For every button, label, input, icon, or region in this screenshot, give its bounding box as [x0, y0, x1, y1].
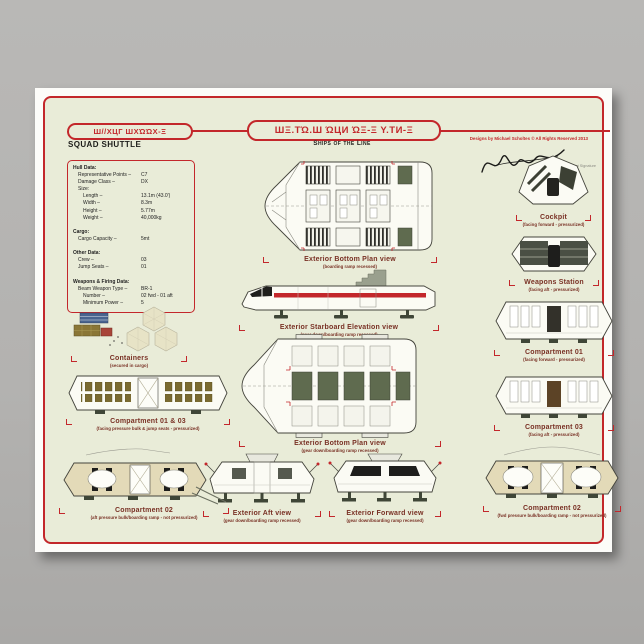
- figure-caption: Cockpit: [515, 214, 592, 222]
- spec-line: Length –13.1m (43.0'): [73, 193, 189, 200]
- spec-line: Weight –40,000kg: [73, 215, 189, 222]
- crop-mark-icon: [509, 280, 515, 286]
- compartment-03-drawing: [493, 370, 615, 422]
- figure-cockpit: Cockpit(facing forward - pressurized): [515, 150, 592, 228]
- spec-line: Width –8.3m: [73, 200, 189, 207]
- figure-subcaption: (gear down/boarding ramp recessed): [328, 518, 442, 524]
- figure-subcaption: (aft pressure bulk/boarding ramp - not p…: [58, 515, 230, 521]
- figure-subcaption: (secured in cargo): [70, 363, 188, 369]
- spec-line: [73, 271, 189, 278]
- crop-mark-icon: [239, 441, 245, 447]
- crop-mark-icon: [239, 325, 245, 331]
- spec-line: Representative Points –C7: [73, 172, 189, 179]
- figure-caption: Containers: [70, 355, 188, 363]
- compartment-02-aft-drawing: [58, 447, 230, 505]
- crop-mark-icon: [223, 508, 229, 514]
- compartment-01-03-drawing: [65, 370, 231, 416]
- spec-line: Crew –03: [73, 257, 189, 264]
- crop-mark-icon: [59, 508, 65, 514]
- compartment-01-drawing: [493, 295, 615, 347]
- crop-mark-icon: [66, 419, 72, 425]
- poster-border: Ш//ХЦГ ШХΏΏХ-Ξ SQUAD SHUTTLE ШΞ.ТΏ.Ш ΏЦИ…: [43, 96, 604, 544]
- spec-line: Number –02 fwd - 01 aft: [73, 293, 189, 300]
- spec-line: Other Data:: [73, 250, 189, 257]
- weapons-station-drawing: [508, 231, 600, 277]
- crop-mark-icon: [608, 350, 614, 356]
- figure-subcaption: (fwd pressure bulk/boarding ramp - not p…: [482, 513, 622, 519]
- crop-mark-icon: [329, 511, 335, 517]
- spec-line: Weapons & Firing Data:: [73, 279, 189, 286]
- figure-caption: Compartment 03: [493, 424, 615, 432]
- crop-mark-icon: [483, 506, 489, 512]
- crop-mark-icon: [435, 511, 441, 517]
- figure-compartment-03: Compartment 03(facing aft - pressurized): [493, 370, 615, 438]
- figure-compartment-01-03: Compartment 01 & 03(facing pressure bulk…: [65, 370, 231, 432]
- spec-line: Beam Weapon Type –BR-1: [73, 286, 189, 293]
- crop-mark-icon: [71, 356, 77, 362]
- spec-line: Cargo:: [73, 229, 189, 236]
- figure-compartment-02-fwd: Compartment 02(fwd pressure bulk/boardin…: [482, 445, 622, 519]
- spec-line: Height –5.77m: [73, 208, 189, 215]
- bottom-plan-recessed-drawing: [262, 158, 438, 254]
- starboard-elevation-drawing: [238, 266, 440, 322]
- figure-subcaption: (facing aft - pressurized): [508, 287, 600, 293]
- figure-subcaption: (facing aft - pressurized): [493, 432, 615, 438]
- figure-caption: Compartment 02: [482, 505, 622, 513]
- figure-subcaption: (facing pressure bulk & jump seats - pre…: [65, 426, 231, 432]
- figure-caption: Exterior Forward view: [328, 510, 442, 518]
- ship-name-glyph-pill: Ш//ХЦГ ШХΏΏХ-Ξ: [67, 123, 193, 140]
- series-title-glyph-pill: ШΞ.ТΏ.Ш ΏЦИ ΏΞ-Ξ Υ.ТИ-Ξ: [247, 120, 441, 141]
- crop-mark-icon: [315, 511, 321, 517]
- crop-mark-icon: [224, 419, 230, 425]
- figure-bottom-plan-recessed: Exterior Bottom Plan view(boarding ramp …: [262, 158, 438, 270]
- forward-view-drawing: [328, 450, 442, 508]
- crop-mark-icon: [263, 257, 269, 263]
- spec-line: Hull Data:: [73, 165, 189, 172]
- spec-line: Cargo Capacity –5mt: [73, 236, 189, 243]
- crop-mark-icon: [516, 215, 522, 221]
- figure-caption: Exterior Bottom Plan view: [238, 440, 442, 448]
- crop-mark-icon: [608, 425, 614, 431]
- crop-mark-icon: [435, 441, 441, 447]
- figure-starboard-elevation: Exterior Starboard Elevation view(gear d…: [238, 266, 440, 338]
- figure-caption: Weapons Station: [508, 279, 600, 287]
- figure-compartment-01: Compartment 01(facing forward - pressuri…: [493, 295, 615, 363]
- bottom-plan-gear-drawing: [238, 334, 442, 438]
- figure-caption: Compartment 01: [493, 349, 615, 357]
- compartment-02-fwd-drawing: [482, 445, 622, 503]
- figure-weapons-station: Weapons Station(facing aft - pressurized…: [508, 231, 600, 293]
- spec-line: Damage Class –DX: [73, 179, 189, 186]
- desktop-background: Ш//ХЦГ ШХΏΏХ-Ξ SQUAD SHUTTLE ШΞ.ТΏ.Ш ΏЦИ…: [0, 0, 644, 644]
- figure-forward-view: Exterior Forward view(gear down/boarding…: [328, 450, 442, 524]
- figure-caption: Exterior Starboard Elevation view: [238, 324, 440, 332]
- crop-mark-icon: [494, 425, 500, 431]
- spec-line: [73, 222, 189, 229]
- spec-rows: Hull Data:Representative Points –C7Damag…: [73, 165, 189, 307]
- crop-mark-icon: [433, 325, 439, 331]
- crop-mark-icon: [593, 280, 599, 286]
- series-subtitle: Ships of the Line: [247, 140, 437, 147]
- crop-mark-icon: [431, 257, 437, 263]
- crop-mark-icon: [181, 356, 187, 362]
- figure-subcaption: (facing forward - pressurized): [515, 222, 592, 228]
- figure-compartment-02-aft: Compartment 02(aft pressure bulk/boardin…: [58, 447, 230, 521]
- blueprint-poster: Ш//ХЦГ ШХΏΏХ-Ξ SQUAD SHUTTLE ШΞ.ТΏ.Ш ΏЦИ…: [35, 88, 612, 552]
- copyright-text: Designs by Michael Scholtes © All Rights…: [470, 136, 588, 141]
- figure-containers: Containers(secured in cargo): [70, 305, 188, 369]
- figure-caption: Exterior Bottom Plan view: [262, 256, 438, 264]
- figure-bottom-plan-gear: Exterior Bottom Plan view(gear down/boar…: [238, 334, 442, 454]
- crop-mark-icon: [615, 506, 621, 512]
- spec-line: Jump Seats –01: [73, 264, 189, 271]
- crop-mark-icon: [494, 350, 500, 356]
- spec-line: Size:: [73, 186, 189, 193]
- spec-line: [73, 243, 189, 250]
- crop-mark-icon: [585, 215, 591, 221]
- hull-data-box: Hull Data:Representative Points –C7Damag…: [67, 160, 195, 313]
- ship-name: SQUAD SHUTTLE: [68, 140, 141, 149]
- containers-drawing: [70, 305, 188, 353]
- figure-subcaption: (facing forward - pressurized): [493, 357, 615, 363]
- figure-caption: Compartment 02: [58, 507, 230, 515]
- cockpit-drawing: [515, 150, 592, 212]
- figure-caption: Compartment 01 & 03: [65, 418, 231, 426]
